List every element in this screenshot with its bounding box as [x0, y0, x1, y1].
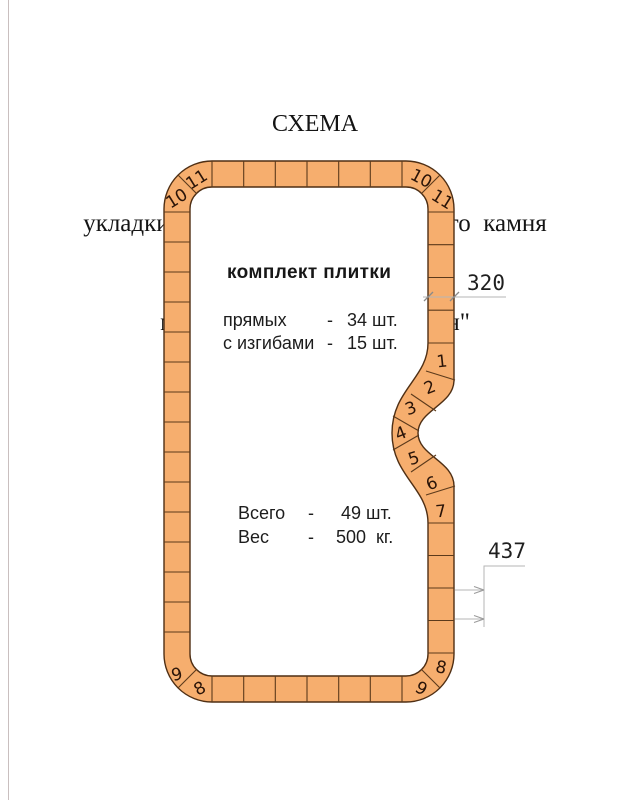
total-row-label: Вес — [238, 526, 308, 550]
kit-row-label: прямых — [223, 309, 327, 332]
tile-number: 1 — [436, 351, 449, 372]
tile-kit-list: прямых-34 шт. с изгибами-15 шт. — [223, 309, 398, 355]
total-row-dash: - — [308, 526, 336, 550]
kit-row-value: 15 шт. — [347, 332, 398, 355]
pool-tiling-diagram: 10 11 10 11 9 8 8 9 1 2 3 4 5 6 7 320 43… — [0, 0, 625, 800]
kit-row-dash: - — [327, 332, 347, 355]
kit-row-straight: прямых-34 шт. — [223, 309, 398, 332]
dimension-437-label: 437 — [488, 539, 526, 563]
tile-kit-totals: Всего- 49 шт. Вес-500 кг. — [238, 502, 393, 549]
pool-band-inner-outline — [190, 187, 428, 676]
schema-page: { "page_title": { "line1": "СХЕМА", "lin… — [0, 0, 625, 800]
total-row-dash: - — [308, 502, 336, 526]
dimension-437-leaders — [455, 590, 484, 619]
kit-row-dash: - — [327, 309, 347, 332]
total-row-count: Всего- 49 шт. — [238, 502, 393, 526]
kit-row-curved: с изгибами-15 шт. — [223, 332, 398, 355]
kit-row-value: 34 шт. — [347, 309, 398, 332]
tile-number: 7 — [435, 501, 448, 522]
dimension-437: 437 — [455, 539, 526, 627]
total-row-label: Всего — [238, 502, 308, 526]
tile-kit-heading: комплект плитки — [227, 262, 397, 284]
dimension-437-bracket — [484, 566, 525, 627]
dimension-320-label: 320 — [467, 271, 505, 295]
dimension-437-arrowheads — [474, 587, 484, 623]
total-row-value: 500 кг. — [336, 526, 393, 550]
kit-row-label: с изгибами — [223, 332, 327, 355]
total-row-value: 49 шт. — [336, 502, 393, 526]
total-row-weight: Вес-500 кг. — [238, 526, 393, 550]
